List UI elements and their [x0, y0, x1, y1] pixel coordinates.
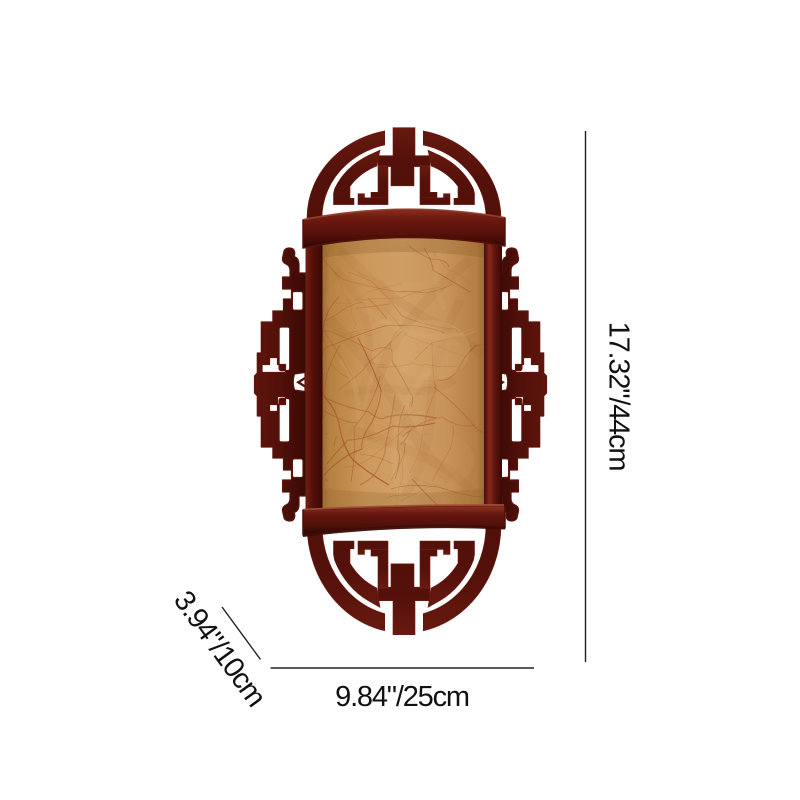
- svg-text:3.94"/10cm: 3.94"/10cm: [167, 585, 272, 712]
- svg-text:9.84"/25cm: 9.84"/25cm: [335, 681, 469, 713]
- svg-text:17.32"/44cm: 17.32"/44cm: [603, 322, 635, 471]
